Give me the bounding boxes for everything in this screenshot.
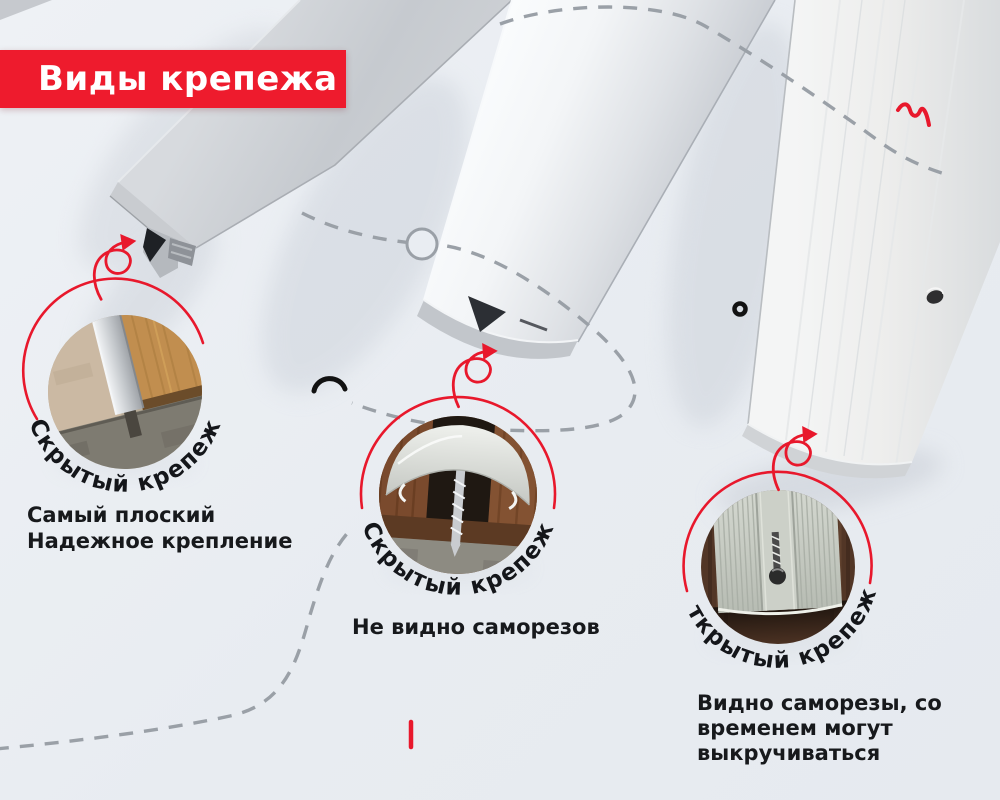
infographic-canvas: Скрытый крепеж Скрытый крепеж Открытый к… <box>0 0 1000 800</box>
dashed-guide-bottom <box>0 528 352 749</box>
description-line: выкручиваться <box>697 741 942 766</box>
description-line: Видно саморезы, со <box>697 691 942 716</box>
corner-profile-wedge <box>0 0 52 20</box>
description-open: Видно саморезы, со временем могут выкруч… <box>697 691 942 766</box>
title-banner: Виды крепежа <box>0 50 346 108</box>
page-title: Виды крепежа <box>0 59 338 99</box>
description-hidden-t: Самый плоский Надежное крепление <box>27 502 292 554</box>
arc-icon <box>314 379 345 391</box>
description-line: Самый плоский <box>27 502 292 528</box>
description-line: временем могут <box>697 716 942 741</box>
description-hidden-dome: Не видно саморезов <box>352 614 600 640</box>
description-line: Не видно саморезов <box>352 614 600 640</box>
ring-icon <box>407 229 437 259</box>
description-line: Надежное крепление <box>27 528 292 554</box>
